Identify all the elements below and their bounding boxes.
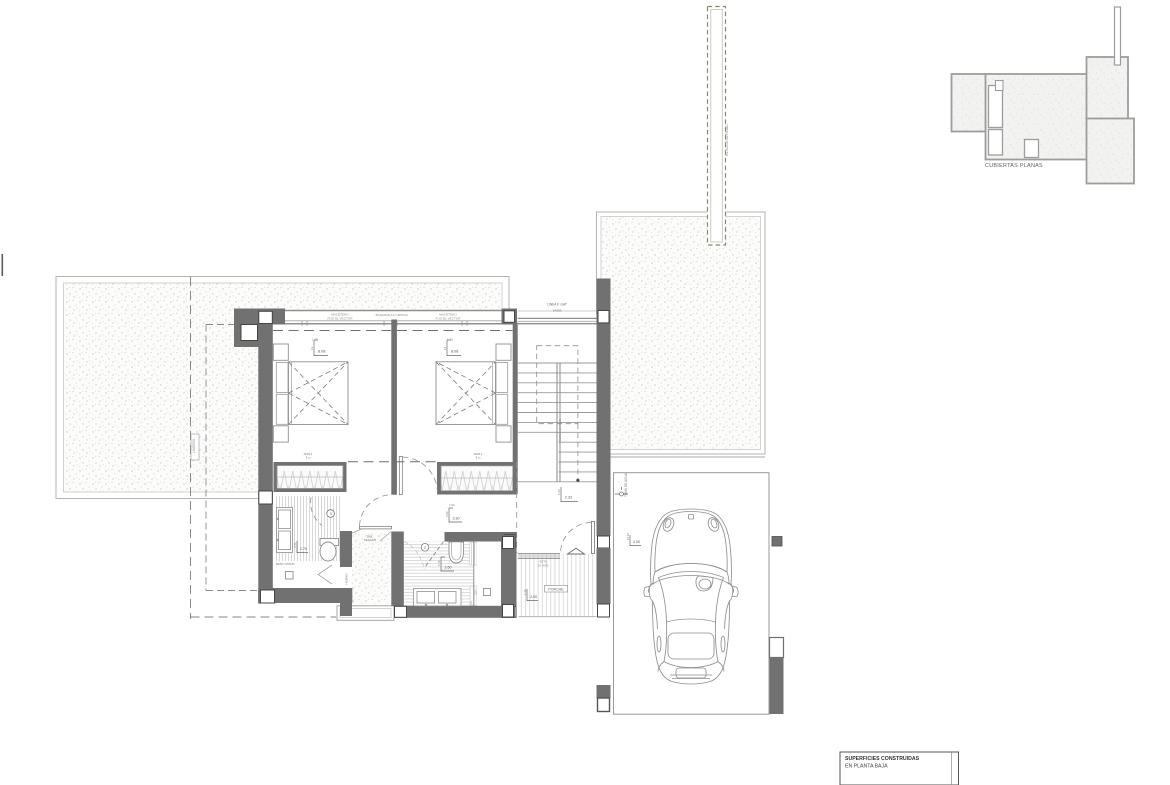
svg-text:2.33: 2.33 — [565, 496, 572, 500]
svg-text:2.00: 2.00 — [530, 595, 537, 599]
svg-text:FIJO EL VECTOR: FIJO EL VECTOR — [436, 317, 462, 321]
svg-text:1.70: 1.70 — [312, 338, 318, 342]
svg-text:7.00: 7.00 — [449, 503, 455, 507]
svg-text:3 m: 3 m — [476, 456, 481, 460]
svg-text:LINEA F. GAT: LINEA F. GAT — [547, 303, 567, 307]
svg-text:3 m: 3 m — [306, 456, 311, 460]
svg-text:1.30: 1.30 — [523, 589, 527, 595]
svg-text:HORNO: HORNO — [345, 573, 349, 585]
svg-text:1.70: 1.70 — [300, 547, 307, 551]
svg-text:8.08: 8.08 — [451, 350, 458, 354]
svg-text:FIJO EL VECTOR: FIJO EL VECTOR — [328, 317, 354, 321]
svg-text:1.72: 1.72 — [437, 560, 441, 566]
svg-text:2.60: 2.60 — [445, 566, 452, 570]
svg-text:LINDERO: LINDERO — [192, 438, 196, 453]
svg-text:TOMA DE AGUA: TOMA DE AGUA — [624, 472, 628, 497]
svg-text:SECADO: SECADO — [364, 538, 377, 542]
svg-text:4.00: 4.00 — [633, 540, 640, 544]
svg-text:12.15: 12.15 — [626, 533, 630, 540]
svg-text:14.000: 14.000 — [553, 309, 562, 313]
svg-text:12: 12 — [443, 346, 447, 350]
svg-text:BAÑO PRINC.: BAÑO PRINC. — [276, 561, 296, 566]
svg-text:12: 12 — [310, 346, 314, 350]
svg-text:1.00: 1.00 — [557, 489, 561, 495]
svg-text:2.20: 2.20 — [293, 542, 297, 548]
svg-text:SUBIDA 18 PELD.: SUBIDA 18 PELD. — [558, 418, 562, 441]
svg-text:BARANDILLA CRISTAL: BARANDILLA CRISTAL — [376, 313, 409, 317]
svg-text:CUBIERTAS PLANAS: CUBIERTAS PLANAS — [985, 163, 1043, 169]
svg-text:PORCHE: PORCHE — [548, 588, 564, 592]
svg-text:8.08: 8.08 — [318, 350, 325, 354]
svg-text:SUPERFICIES CONSTRUIDAS: SUPERFICIES CONSTRUIDAS — [845, 756, 920, 762]
svg-text:10 HGE: 10 HGE — [538, 563, 549, 567]
svg-text:EL ACCESO ROAD: EL ACCESO ROAD — [725, 124, 729, 156]
svg-text:3.30: 3.30 — [453, 517, 460, 521]
svg-text:EN PLANTA BAJA: EN PLANTA BAJA — [845, 764, 888, 770]
svg-text:1.70: 1.70 — [447, 338, 453, 342]
svg-text:0.90: 0.90 — [445, 511, 449, 517]
